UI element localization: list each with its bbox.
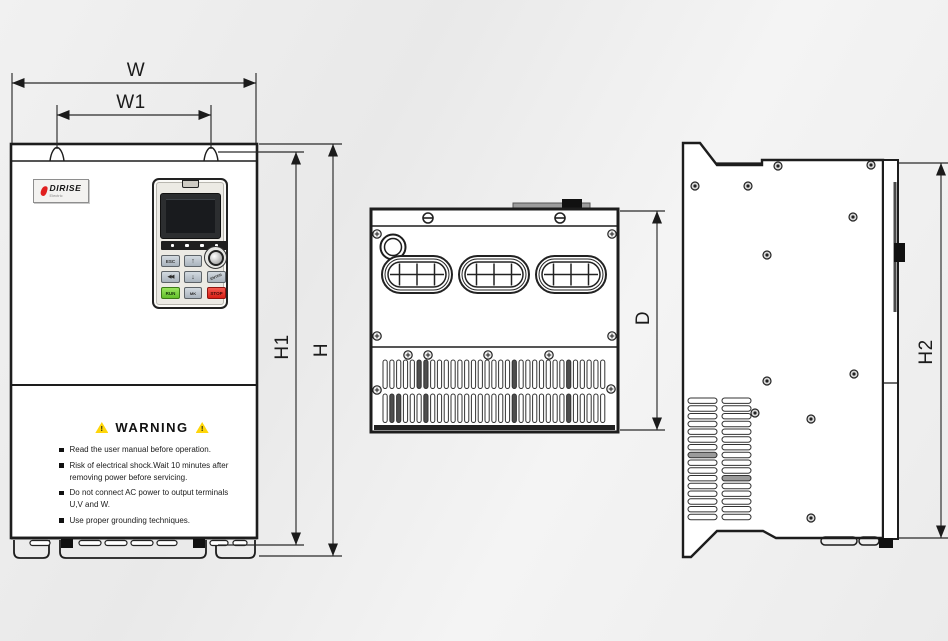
warning-title-row: ! WARNING ! (57, 420, 247, 435)
side-foot-black (879, 538, 893, 548)
up-button: ↑ (184, 255, 202, 267)
lcd-frame (160, 193, 221, 239)
mk-button: MK (184, 287, 202, 299)
warning-item: Do not connect AC power to output termin… (57, 487, 247, 511)
dim-label-w1: W1 (109, 92, 153, 114)
bullet-square-icon (59, 518, 64, 523)
warning-title: WARNING (115, 420, 188, 435)
enter-button: ENTER (207, 271, 226, 283)
status-led (185, 244, 189, 248)
dim-label-w: W (114, 60, 158, 82)
bullet-square-icon (59, 448, 64, 453)
bullet-square-icon (59, 491, 64, 496)
keypad-tab (182, 180, 199, 188)
warning-item: Use proper grounding techniques. (57, 515, 247, 527)
side-latch-tab (894, 243, 905, 262)
jog-knob (204, 246, 227, 269)
logo-swoosh-icon (39, 185, 47, 196)
dim-label-h: H (311, 328, 333, 372)
esc-button: ESC (161, 255, 180, 267)
shift-button: ◀◀ (161, 271, 180, 283)
down-button: ↓ (184, 271, 202, 283)
stop-button: STOP (207, 287, 226, 299)
front-terminal-block-right (193, 539, 205, 548)
dim-label-d: D (633, 296, 655, 340)
dim-label-h2: H2 (916, 330, 938, 374)
brand-logo: DIRISE Electric (33, 179, 89, 203)
warning-triangle-icon: ! (196, 422, 209, 433)
status-led (200, 244, 204, 248)
warning-item: Read the user manual before operation. (57, 444, 247, 456)
front-terminal-block-left (61, 539, 73, 548)
lcd-screen (166, 199, 215, 233)
bullet-square-icon (59, 463, 64, 468)
brand-tagline: Electric (50, 194, 82, 198)
keypad-panel: ESC ↑ ◀◀ ↓ ENTER RUN MK STOP (152, 178, 228, 309)
brand-name: DIRISE (50, 184, 82, 193)
warning-triangle-icon: ! (95, 422, 108, 433)
warning-item: Risk of electrical shock.Wait 10 minutes… (57, 460, 247, 484)
dim-label-h1: H1 (272, 325, 294, 369)
cable-gland-cutouts (382, 256, 606, 293)
run-button: RUN (161, 287, 180, 299)
warning-block: ! WARNING ! Read the user manual before … (57, 420, 247, 530)
dimension-diagram: W W1 H1 H D H2 DIRISE Electric ESC ↑ ◀◀ … (0, 0, 948, 641)
status-led (171, 244, 175, 248)
